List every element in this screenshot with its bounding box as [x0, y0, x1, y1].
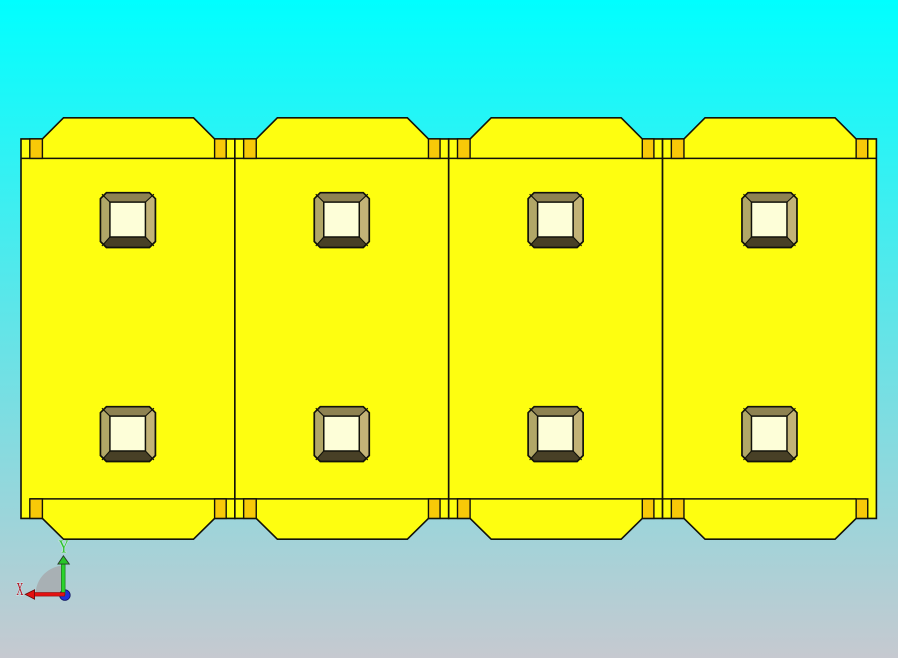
svg-text:X: X — [16, 579, 23, 599]
